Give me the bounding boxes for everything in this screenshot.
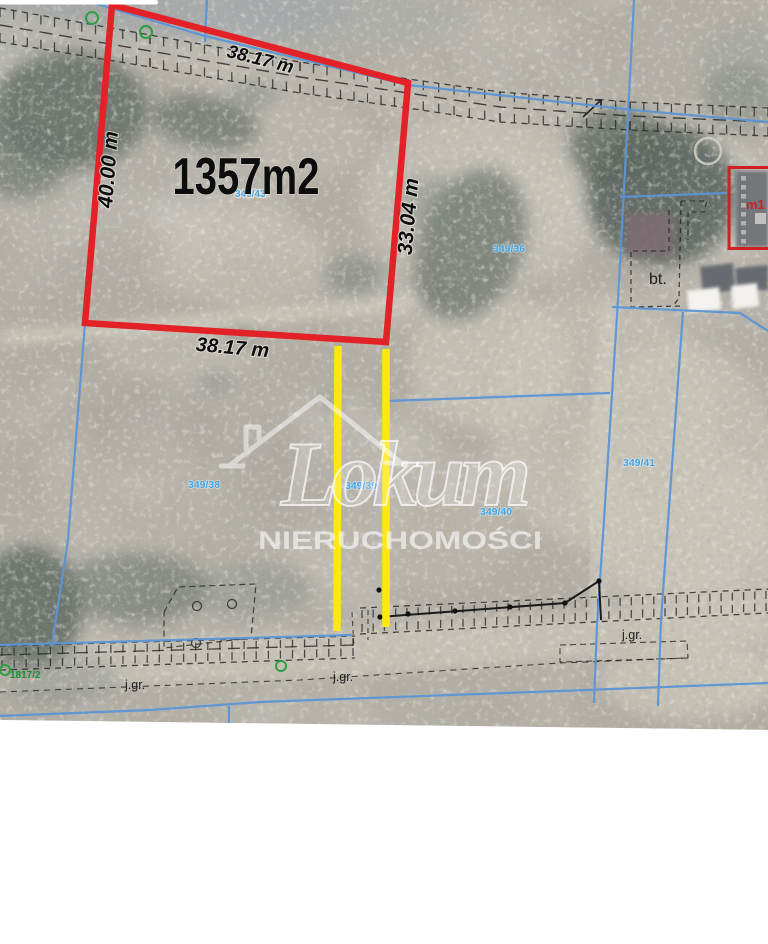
svg-text:Lokum: Lokum	[280, 423, 531, 525]
svg-text:bt.: bt.	[649, 271, 667, 288]
svg-text:349/38: 349/38	[188, 479, 220, 491]
svg-text:NIERUCHOMOŚCI: NIERUCHOMOŚCI	[258, 525, 542, 555]
svg-text:1817/2: 1817/2	[10, 670, 41, 681]
svg-text:j.gr.: j.gr.	[621, 628, 642, 642]
svg-text:1357m2: 1357m2	[173, 148, 320, 206]
svg-text:349/41: 349/41	[623, 457, 655, 469]
svg-text:j.gr.: j.gr.	[124, 678, 145, 692]
svg-text:m1: m1	[746, 197, 765, 212]
svg-text:349/36: 349/36	[493, 243, 525, 255]
svg-text:j.gr.: j.gr.	[332, 670, 353, 684]
